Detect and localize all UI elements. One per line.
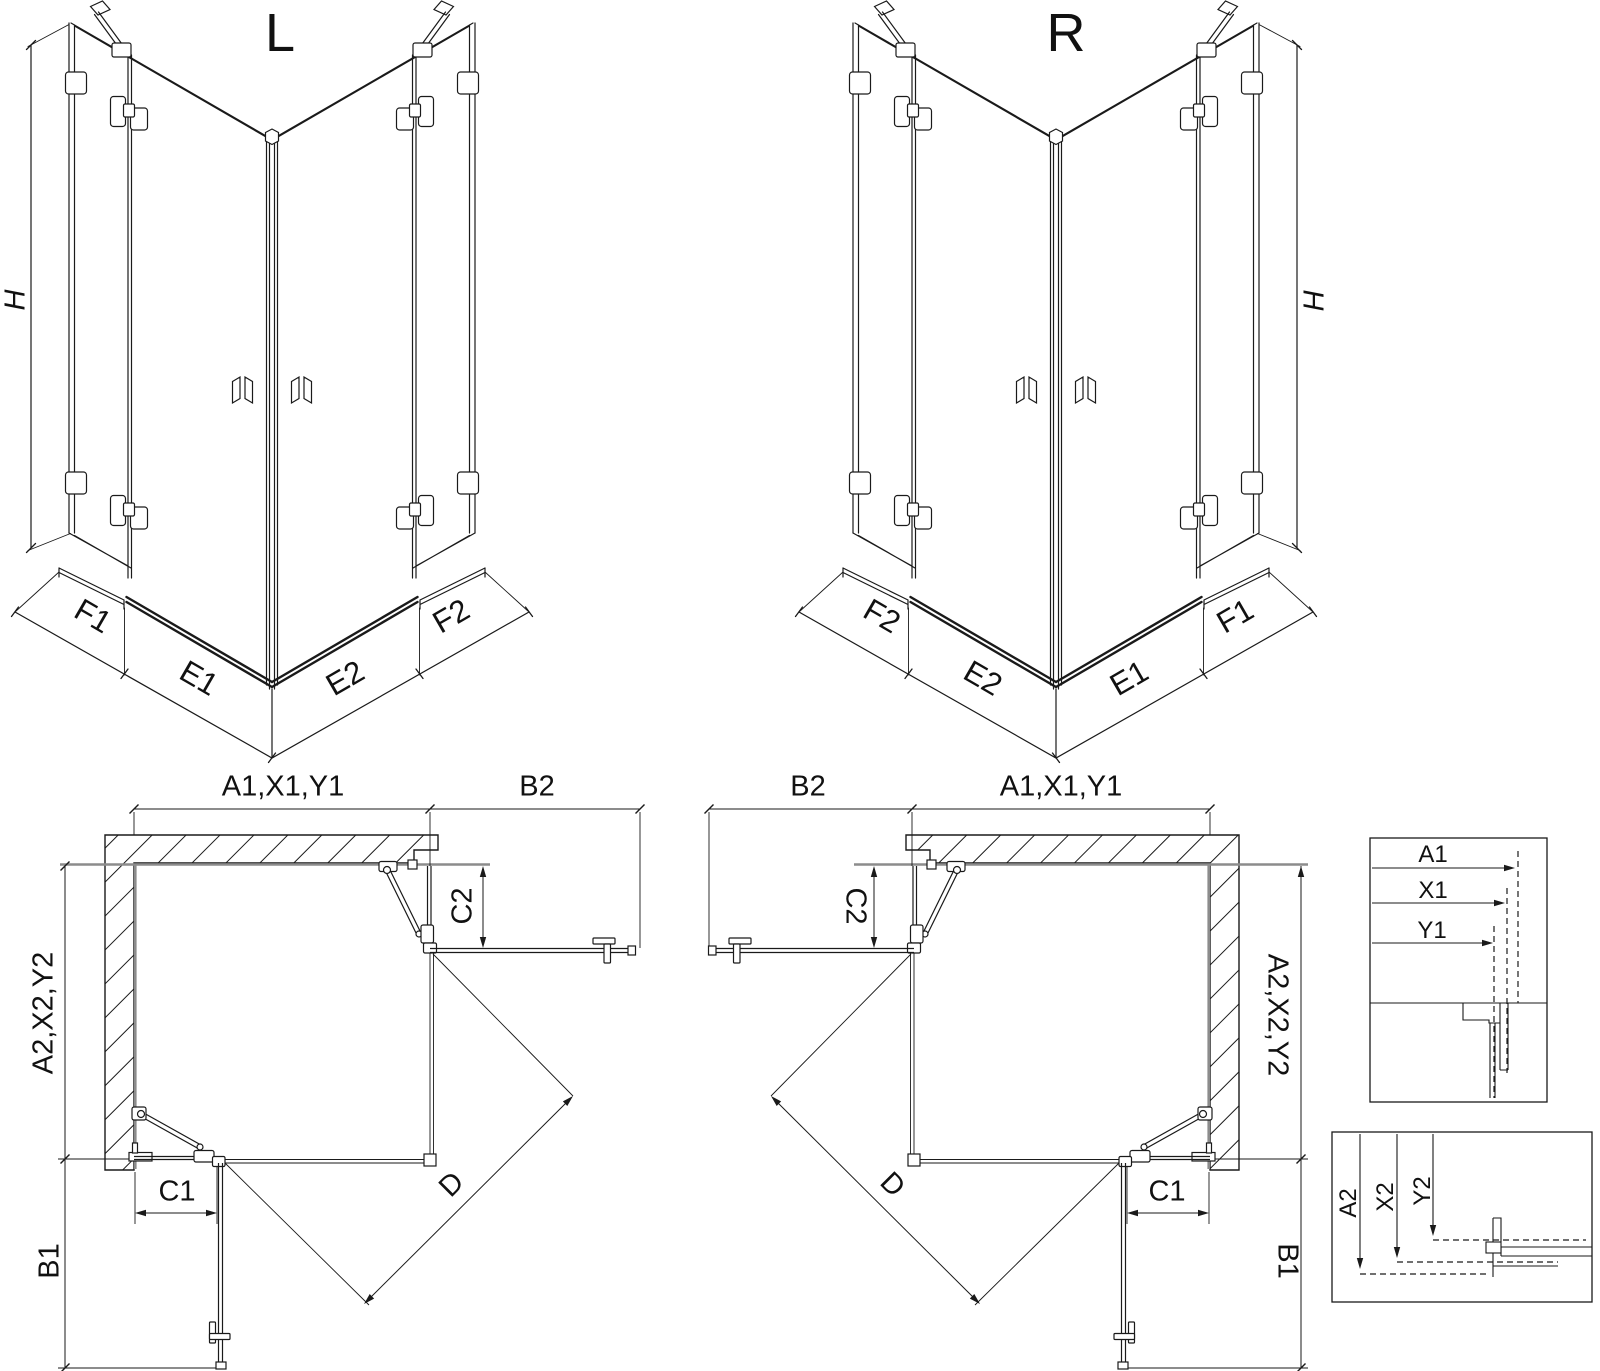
iso-right-height-dim-label: H [1298, 290, 1327, 311]
technical-drawing-linework [0, 0, 1600, 1371]
plan-left-side-dim-label: A2,X2,Y2 [30, 952, 59, 1075]
plan-left-b2-label: B2 [519, 773, 554, 802]
plan-left-c1-label: C1 [158, 1178, 195, 1207]
plan-right-top-dim-label: A1,X1,Y1 [1000, 773, 1123, 802]
detail-bottom-a2-label: A2 [1337, 1188, 1361, 1217]
detail-top-y1-label: Y1 [1417, 919, 1446, 943]
detail-bottom-x2-label: X2 [1374, 1182, 1398, 1211]
detail-top-a1-label: A1 [1418, 843, 1447, 867]
plan-left-top-dim-label: A1,X1,Y1 [222, 773, 345, 802]
detail-top-x1-label: X1 [1418, 879, 1447, 903]
plan-left-c2-label: C2 [449, 887, 478, 924]
plan-right-c1-label: C1 [1148, 1178, 1185, 1207]
iso-left-height-dim-label: H [2, 290, 31, 311]
plan-right-side-dim-label: A2,X2,Y2 [1263, 954, 1292, 1077]
plan-right-b2-label: B2 [790, 773, 825, 802]
shower-enclosure-technical-drawing: L H F1 E1 E2 F2 R H F2 E2 E1 F1 A1,X1,Y1… [0, 0, 1600, 1371]
plan-right-c2-label: C2 [841, 887, 870, 924]
detail-bottom-y2-label: Y2 [1411, 1176, 1435, 1205]
iso-right-title: R [1047, 6, 1086, 60]
plan-right-b1-label: B1 [1273, 1243, 1302, 1278]
plan-left-b1-label: B1 [36, 1243, 65, 1278]
iso-left-title: L [265, 6, 295, 60]
